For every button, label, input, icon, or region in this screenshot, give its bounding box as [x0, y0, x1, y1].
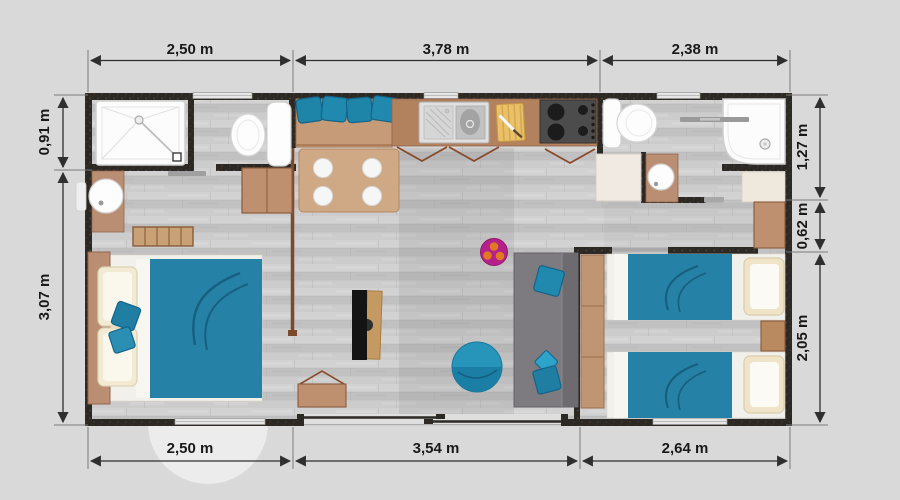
dim-top-1: 2,50 m: [167, 41, 214, 58]
cutting-board-icon: [496, 103, 525, 141]
dining-table-icon: [299, 149, 399, 212]
twin-bed-icon: [607, 352, 785, 418]
washbasin-2-icon: [646, 154, 678, 202]
pouf-icon: [452, 342, 502, 392]
dim-left-1: 0,91 m: [36, 109, 53, 156]
floor-plan-image: 2,50 m 3,78 m 2,38 m 2,50 m 3,54 m 2,64 …: [0, 0, 900, 500]
dim-top-2: 3,78 m: [423, 41, 470, 58]
dim-left-2: 3,07 m: [36, 274, 53, 321]
window-icon: [657, 93, 700, 99]
dim-right-1: 1,27 m: [794, 124, 811, 171]
shower-glass-bar-highlight: [700, 118, 720, 121]
wardrobe-icon: [754, 202, 785, 248]
window-icon: [424, 93, 458, 99]
sliding-door-icon: [297, 414, 568, 426]
bench-seat-icon: [295, 95, 398, 147]
door-leaf: [168, 171, 206, 176]
cabinet-icon: [596, 154, 641, 201]
dim-right-3: 2,05 m: [794, 315, 811, 362]
sofa-icon: [514, 253, 578, 407]
bedroom-master: [88, 252, 262, 404]
bath-mat: [742, 172, 785, 202]
wardrobe-icon: [581, 255, 604, 408]
twin-bed-icon: [607, 254, 785, 320]
nightstand-icon: [761, 321, 785, 351]
dim-top-3: 2,38 m: [672, 41, 719, 58]
door-leaf: [612, 248, 668, 252]
window-icon: [175, 419, 265, 425]
towel-ladder-icon: [133, 227, 193, 246]
dim-right-2: 0,62 m: [794, 203, 811, 250]
rug-icon: [481, 239, 508, 266]
kitchen-sink-icon: [419, 102, 489, 143]
stove-icon: [540, 100, 596, 143]
shower-icon: [96, 101, 185, 165]
floor-plan-svg: 2,50 m 3,78 m 2,38 m 2,50 m 3,54 m 2,64 …: [0, 0, 900, 500]
dim-bottom-1: 2,50 m: [167, 440, 214, 457]
window-icon: [653, 419, 727, 425]
window-icon: [193, 93, 252, 99]
dim-bottom-2: 3,54 m: [413, 440, 460, 457]
dim-bottom-3: 2,64 m: [662, 440, 709, 457]
door-leaf: [704, 197, 724, 203]
dresser-icon: [242, 168, 292, 213]
shower-2-icon: [723, 99, 785, 164]
